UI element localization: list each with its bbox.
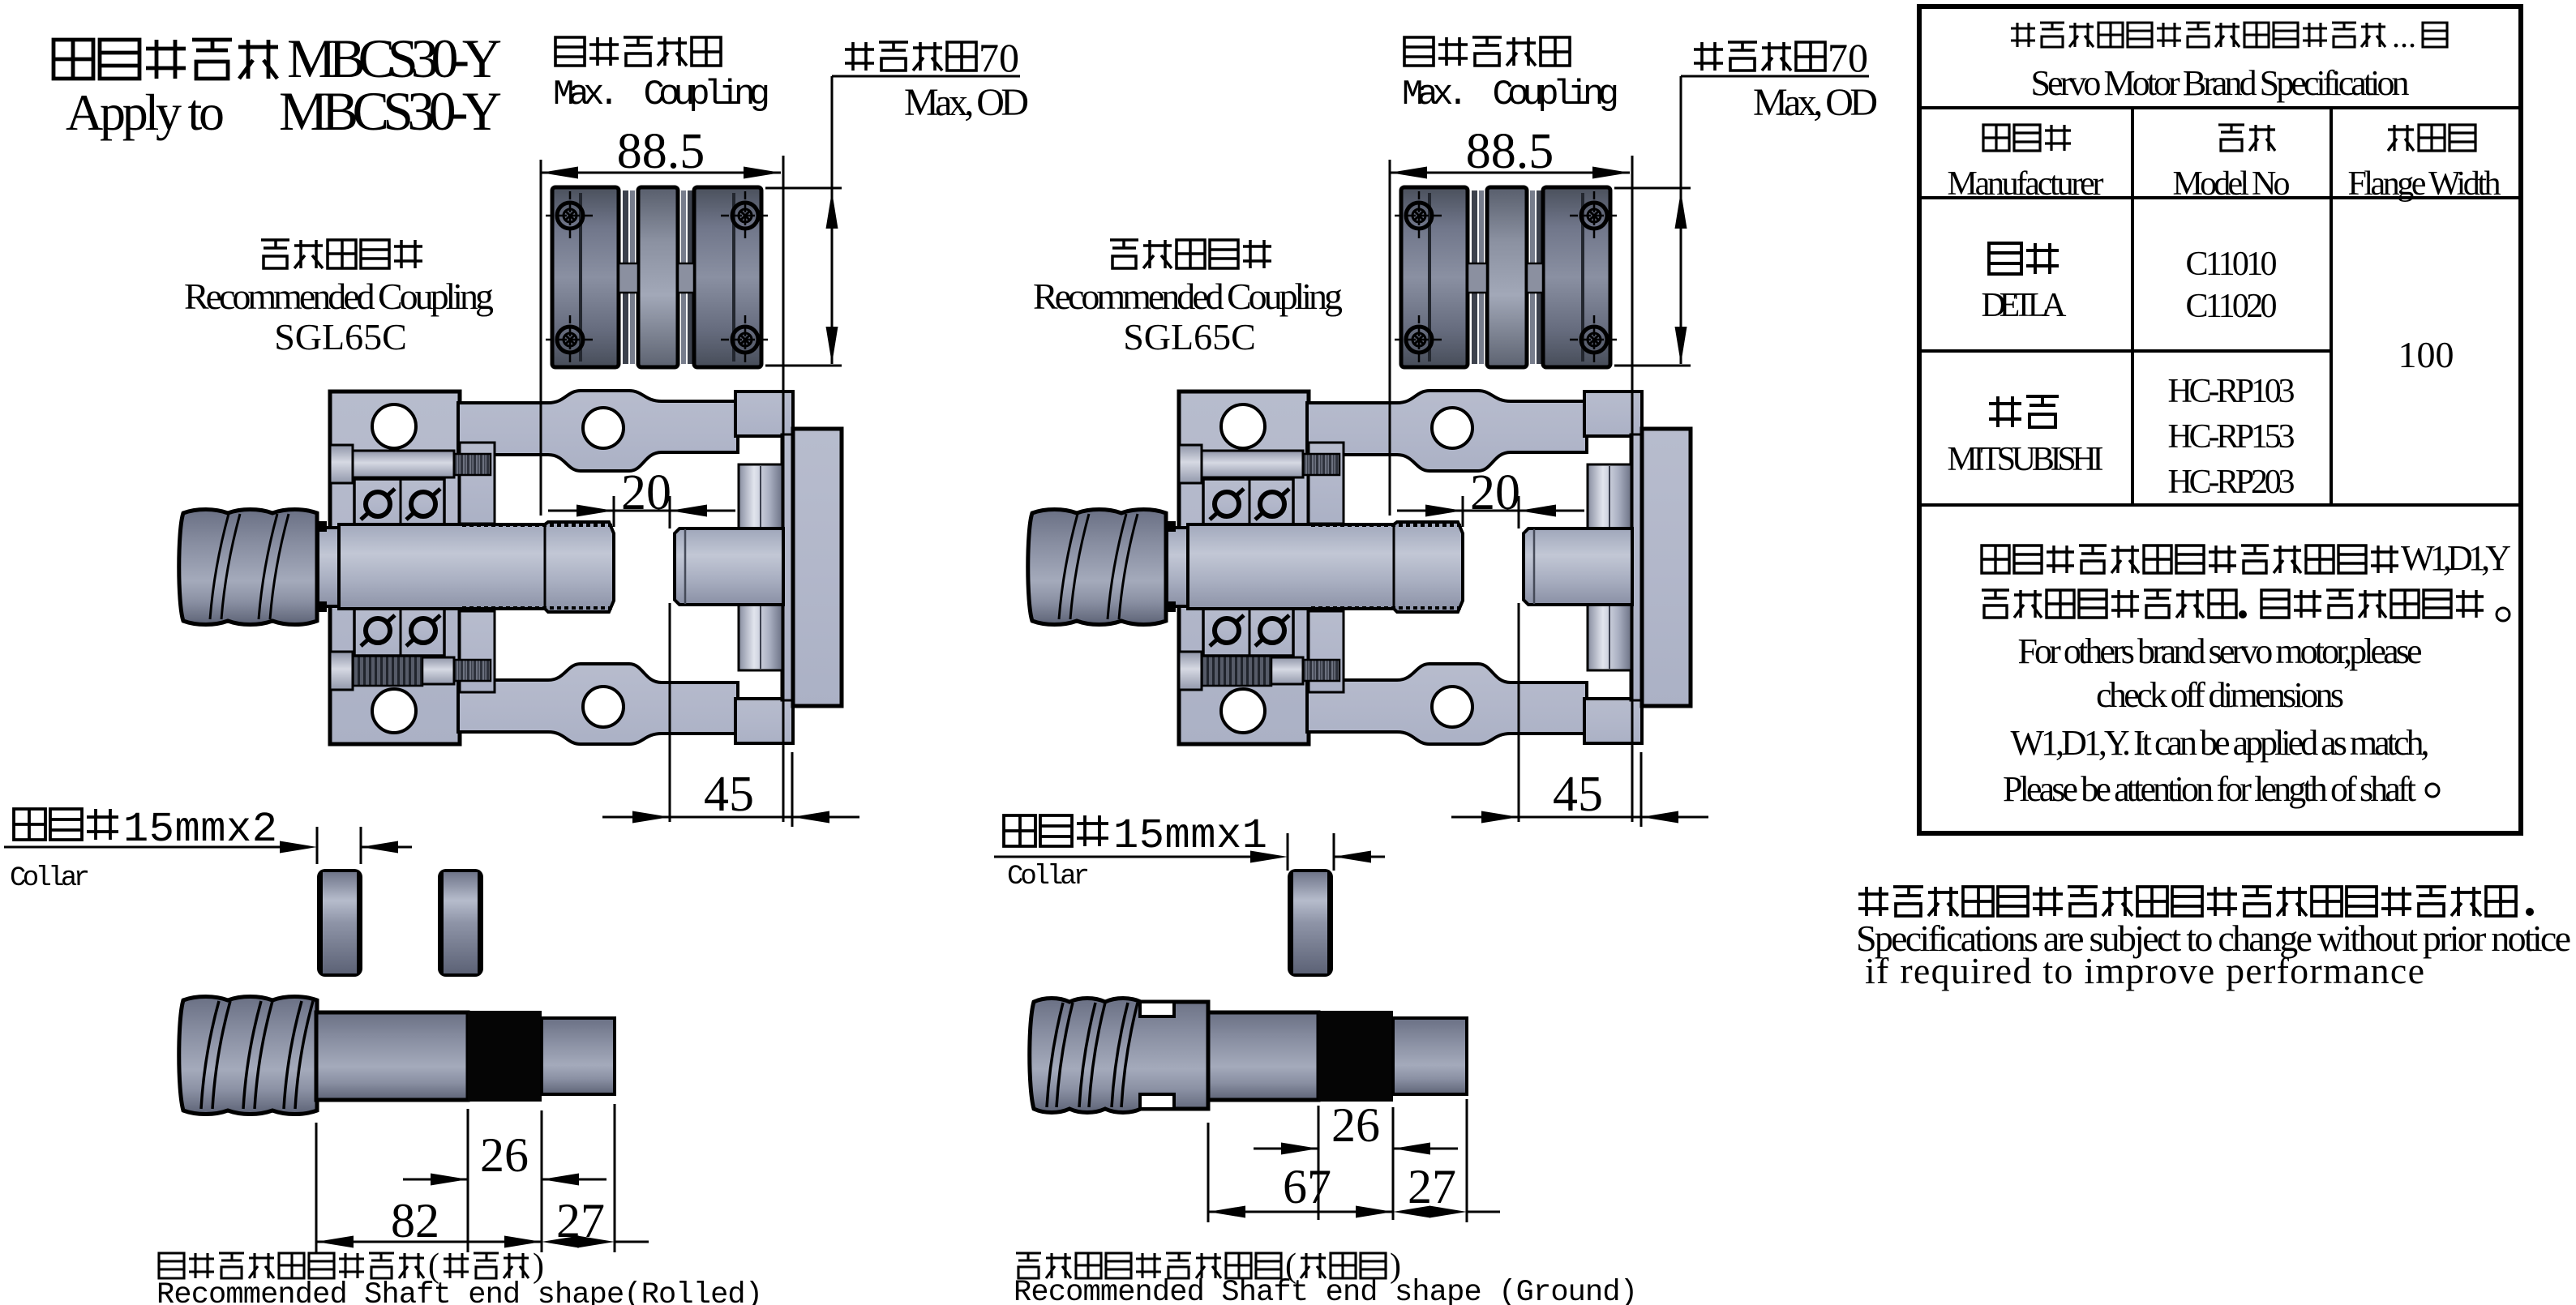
svg-text:88.5: 88.5 <box>1466 124 1554 179</box>
svg-text:SGL65C: SGL65C <box>274 316 407 357</box>
svg-text:Recommended Shaft end shape (G: Recommended Shaft end shape (Ground) <box>1014 1276 1638 1305</box>
svg-text:Flange Width: Flange Width <box>2348 165 2501 203</box>
svg-text:Max. Coupling: Max. Coupling <box>1402 75 1619 115</box>
svg-text:SGL65C: SGL65C <box>1123 316 1256 357</box>
svg-text:27: 27 <box>1408 1160 1456 1213</box>
svg-text:45: 45 <box>704 767 754 822</box>
svg-text:20: 20 <box>621 465 671 520</box>
svg-text:HC-RP203: HC-RP203 <box>2168 464 2295 501</box>
svg-text:Please be attention for length: Please be attention for length of shaft <box>2003 769 2416 809</box>
svg-text:Max, OD: Max, OD <box>1753 81 1878 124</box>
svg-text:88.5: 88.5 <box>617 124 705 179</box>
svg-text:HC-RP153: HC-RP153 <box>2168 418 2295 456</box>
svg-text:C11020: C11020 <box>2186 288 2278 325</box>
svg-text:100: 100 <box>2398 334 2454 375</box>
svg-text:For others brand servo motor,p: For others brand servo motor,please <box>2018 631 2423 671</box>
svg-text:45: 45 <box>1553 767 1603 822</box>
svg-text:Recommended Coupling: Recommended Coupling <box>1033 276 1343 317</box>
svg-text:70: 70 <box>979 35 1019 80</box>
svg-text:HC-RP103: HC-RP103 <box>2168 373 2295 410</box>
svg-text:Collar: Collar <box>1007 862 1090 892</box>
svg-text:MITSUBISHI: MITSUBISHI <box>1948 441 2104 478</box>
svg-text:Collar: Collar <box>10 863 90 894</box>
svg-text:C11010: C11010 <box>2186 246 2278 283</box>
svg-text:Model No: Model No <box>2173 165 2291 203</box>
svg-text:...: ... <box>2392 18 2416 54</box>
svg-text:check off dimensions: check off dimensions <box>2096 675 2344 715</box>
svg-text:if required to improve perform: if required to improve performance <box>1865 950 2424 991</box>
svg-text:DETLA: DETLA <box>1982 287 2068 324</box>
svg-text:Max. Coupling: Max. Coupling <box>553 75 770 115</box>
svg-text:Servo Motor Brand Specificatio: Servo Motor Brand Specification <box>2031 63 2410 103</box>
svg-text:Manufacturer: Manufacturer <box>1948 165 2104 203</box>
svg-text:Max, OD: Max, OD <box>904 81 1029 124</box>
svg-text:20: 20 <box>1470 465 1520 520</box>
svg-text:Recommended Shaft end shape(Ro: Recommended Shaft end shape(Rolled) <box>156 1278 763 1305</box>
svg-text:Recommended Coupling: Recommended Coupling <box>184 276 494 317</box>
svg-text:15mmx1: 15mmx1 <box>1113 812 1267 860</box>
svg-text:W1,D1,Y. It can be applied as: W1,D1,Y. It can be applied as match, <box>2011 723 2430 763</box>
svg-text:70: 70 <box>1828 35 1868 80</box>
svg-text:26: 26 <box>1331 1098 1380 1152</box>
svg-text:W1,D1,Y: W1,D1,Y <box>2401 538 2511 578</box>
svg-text:26: 26 <box>480 1128 529 1182</box>
svg-text:67: 67 <box>1283 1160 1331 1213</box>
svg-text:82: 82 <box>391 1194 439 1247</box>
svg-text:MBCS30-Y: MBCS30-Y <box>279 80 502 142</box>
svg-text:Apply to: Apply to <box>66 83 225 141</box>
